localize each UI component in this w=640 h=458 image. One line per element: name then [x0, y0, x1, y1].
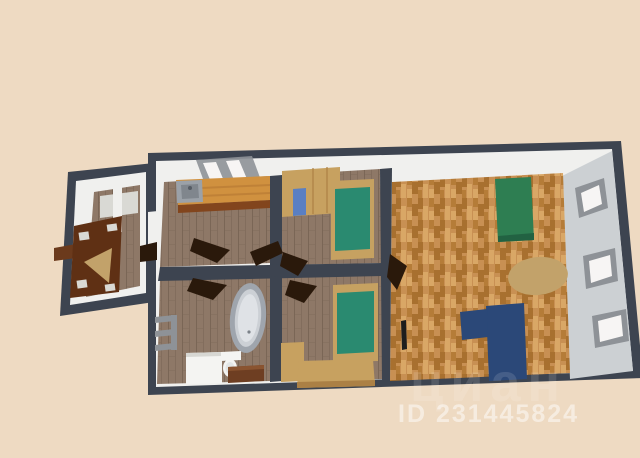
annex-room — [54, 163, 154, 316]
bedroom2-bed-mattress — [337, 291, 374, 354]
living-blue-sofa-arm — [460, 309, 488, 340]
bedroom1-wardrobe-seam — [326, 167, 328, 213]
watermark-id: ID 231445824 — [398, 400, 579, 428]
annex-door-opening — [148, 211, 158, 247]
annex-wardrobe-panel — [78, 231, 89, 240]
bathroom-radiator-side — [171, 315, 177, 350]
annex-wardrobe-panel — [105, 283, 116, 291]
living-tv — [401, 320, 407, 350]
kitchen-faucet — [188, 186, 192, 190]
annex-wardrobe-panel — [107, 223, 118, 231]
bedroom1-wardrobe-seam — [312, 168, 314, 214]
living-green-sofa — [495, 177, 534, 242]
floorplan-svg: циан ID 231445824 — [0, 0, 640, 458]
bathtub-drain — [247, 330, 250, 333]
floorplan-3d-view: циан ID 231445824 — [0, 0, 640, 458]
bedroom1-bed-mattress — [335, 187, 370, 251]
annex-wardrobe-panel — [76, 279, 87, 288]
bedroom1-wardrobe-blue-door — [293, 188, 306, 216]
wall-bathroom-bedroom2 — [270, 276, 282, 382]
